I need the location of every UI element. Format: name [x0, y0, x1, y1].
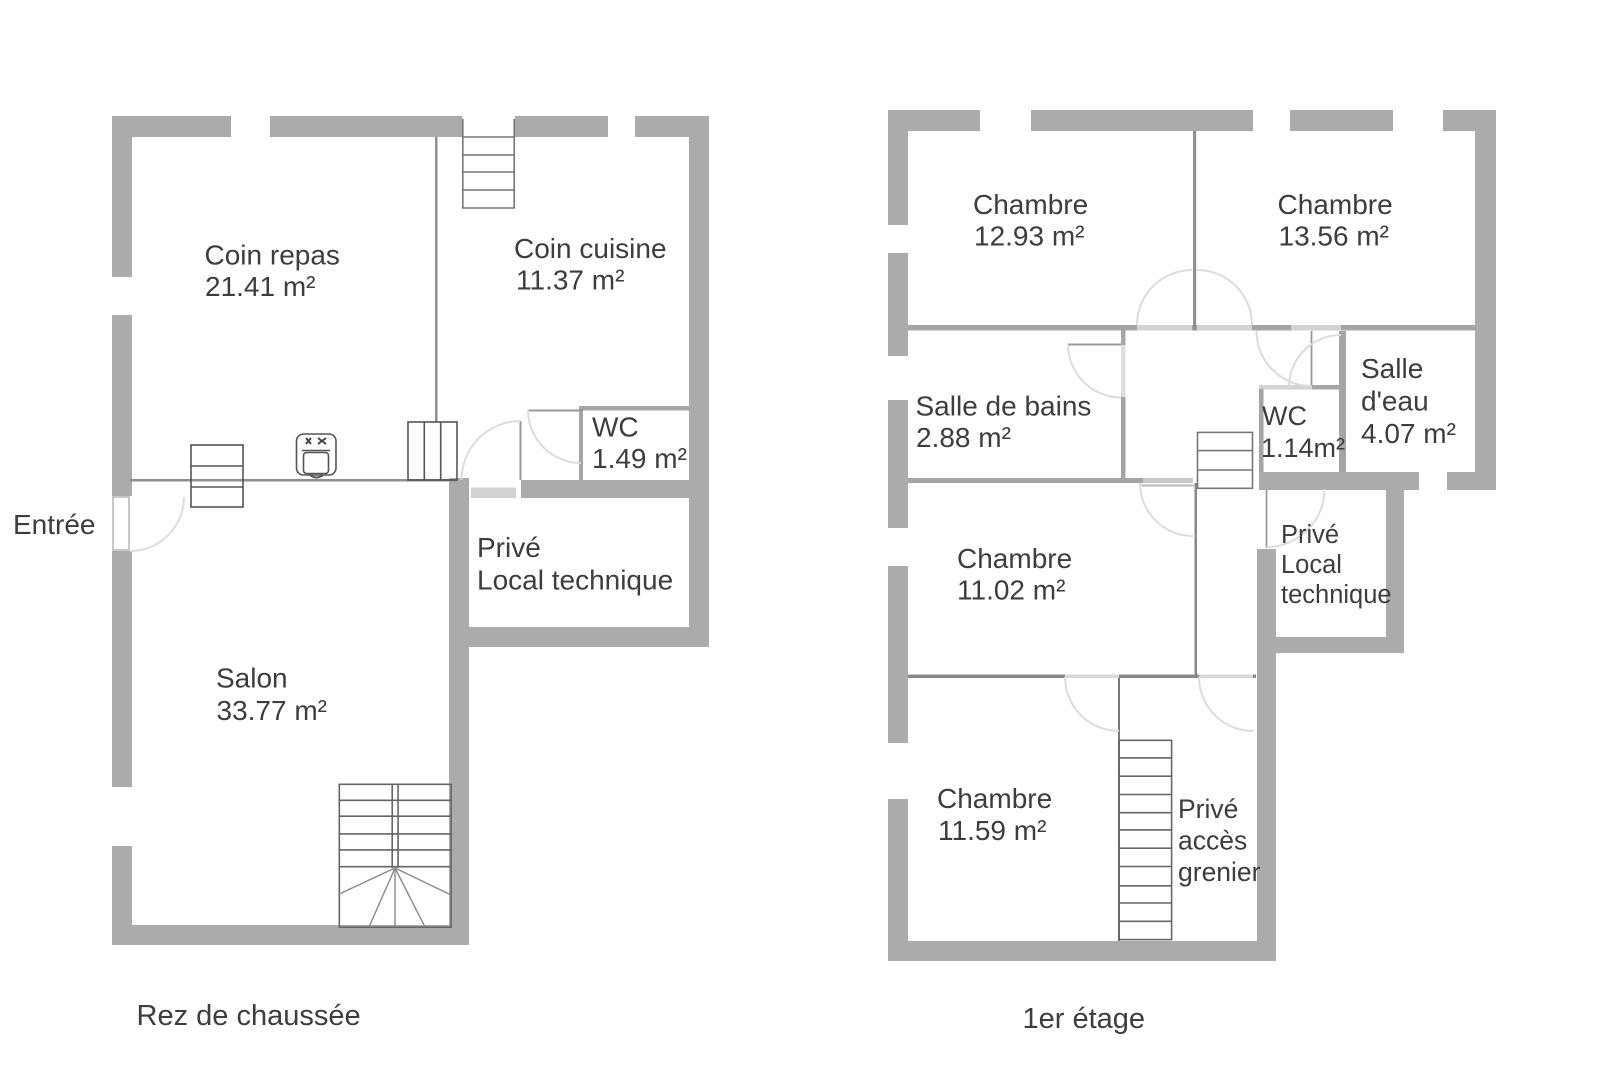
svg-text:Chambre: Chambre [1278, 189, 1393, 220]
svg-text:Privé: Privé [1178, 794, 1238, 824]
svg-text:2.88 m²: 2.88 m² [916, 422, 1011, 453]
svg-text:11.02 m²: 11.02 m² [957, 575, 1065, 606]
svg-text:Salle de bains: Salle de bains [916, 391, 1092, 422]
svg-text:Rez de chaussée: Rez de chaussée [137, 1000, 361, 1032]
svg-text:Chambre: Chambre [937, 783, 1052, 814]
svg-text:grenier: grenier [1178, 857, 1261, 887]
svg-text:11.59 m²: 11.59 m² [938, 815, 1046, 846]
svg-text:1er étage: 1er étage [1023, 1003, 1146, 1035]
svg-text:Chambre: Chambre [957, 543, 1072, 574]
svg-text:Entrée: Entrée [13, 509, 96, 540]
svg-text:Privé: Privé [477, 532, 541, 563]
svg-text:technique: technique [1281, 581, 1392, 609]
svg-text:12.93 m²: 12.93 m² [974, 221, 1085, 252]
svg-text:13.56 m²: 13.56 m² [1279, 221, 1390, 252]
svg-text:Local: Local [1281, 551, 1342, 579]
svg-text:11.37 m²: 11.37 m² [516, 265, 624, 296]
svg-text:Salon: Salon [216, 663, 288, 694]
svg-text:1.14m²: 1.14m² [1261, 433, 1345, 463]
svg-text:Coin repas: Coin repas [205, 240, 340, 271]
svg-text:Chambre: Chambre [973, 189, 1088, 220]
svg-text:Coin cuisine: Coin cuisine [514, 233, 667, 264]
svg-text:1.49 m²: 1.49 m² [592, 443, 687, 474]
svg-text:WC: WC [1262, 401, 1307, 431]
svg-text:accès: accès [1178, 826, 1247, 856]
svg-text:Local technique: Local technique [477, 565, 673, 596]
svg-text:33.77 m²: 33.77 m² [217, 695, 328, 726]
svg-text:4.07 m²: 4.07 m² [1361, 418, 1456, 449]
svg-text:Privé: Privé [1281, 521, 1339, 549]
svg-text:d'eau: d'eau [1361, 386, 1429, 417]
svg-text:Salle: Salle [1361, 353, 1423, 384]
svg-text:WC: WC [592, 412, 639, 443]
svg-text:21.41 m²: 21.41 m² [205, 271, 316, 302]
